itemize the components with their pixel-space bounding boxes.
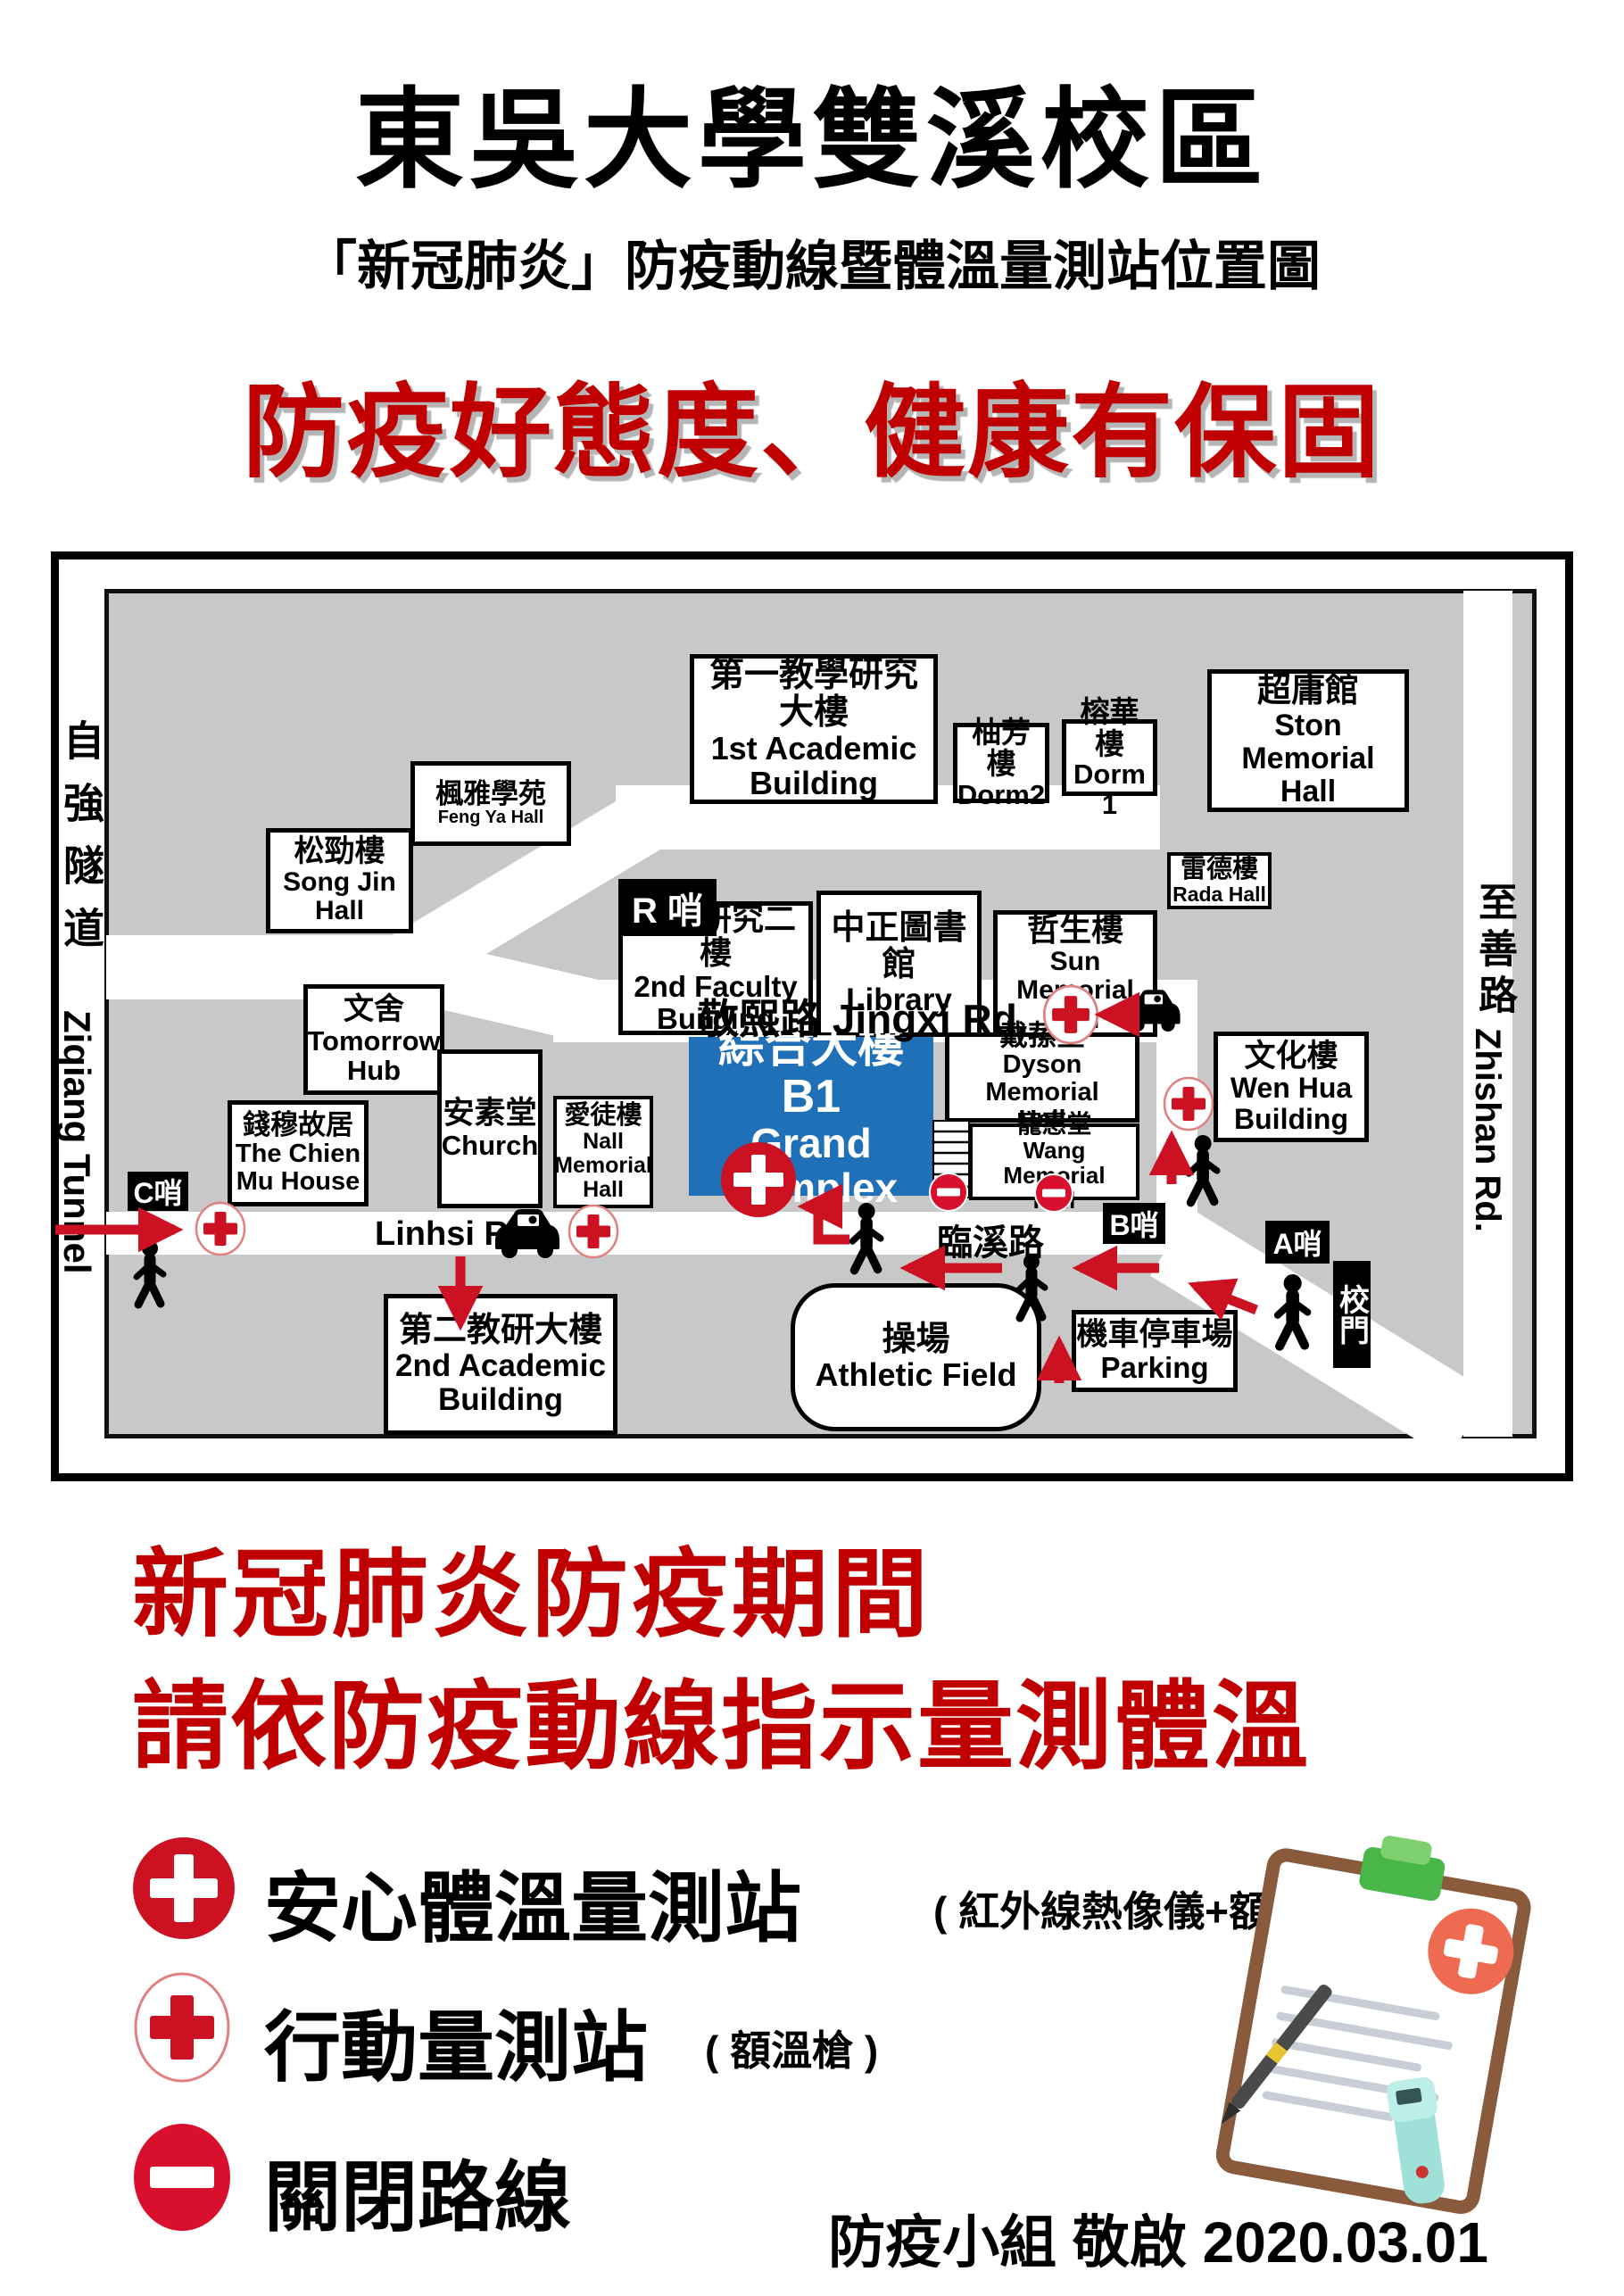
- building-label: 哲生樓: [1027, 913, 1123, 948]
- building-dorm2: 柚芳樓 Dorm2: [953, 723, 1049, 803]
- building-wang-memorial: 寵惠堂 Wang Memorial Hall: [969, 1123, 1139, 1200]
- thermometer-gun-icon: [1385, 2076, 1450, 2206]
- legend-safe-label: 安心體溫量測站: [264, 1845, 801, 1957]
- building-2nd-academic: 第二教研大樓 2nd Academic Building: [384, 1294, 617, 1435]
- notice-line-2: 請依防疫動線指示量測體溫: [132, 1649, 1310, 1788]
- label-zhishan-zh: 至善路: [1465, 882, 1522, 1021]
- building-1st-academic: 第一教學研究大樓 1st Academic Building: [690, 654, 938, 804]
- building-label: 中正圖書館: [821, 910, 977, 983]
- building-label: Athletic Field: [815, 1358, 1016, 1393]
- building-label: 錢穆故居: [243, 1110, 353, 1140]
- legend-mobile-label: 行動量測站: [264, 1985, 648, 2096]
- label-ziqiang-tunnel-zh: 自強隧道: [52, 719, 111, 969]
- slogan-text: 防疫好態度、健康有保固: [0, 350, 1624, 497]
- building-label: Wen Hua: [1230, 1073, 1352, 1104]
- building-label: Hall: [1033, 1188, 1076, 1213]
- building-athletic-field: 操場 Athletic Field: [791, 1283, 1041, 1431]
- poster-page: 東吳大學雙溪校區 「新冠肺炎」防疫動線暨體溫量測站位置圖 防疫好態度、健康有保固…: [0, 0, 1624, 2296]
- legend-closed-label: 關閉路線: [264, 2134, 571, 2246]
- building-label: 榕華樓: [1066, 696, 1153, 759]
- legend-mobile-note: ( 額溫槍 ): [705, 2018, 878, 2077]
- label-linhsi-road-en: Linhsi Rd.: [375, 1215, 539, 1254]
- legend-safe-station-icon: [133, 1837, 235, 1939]
- building-label: 安素堂: [443, 1097, 536, 1131]
- building-label: Hall: [1280, 775, 1336, 808]
- building-label: Building: [750, 767, 878, 801]
- building-label: 雷德樓: [1181, 856, 1258, 883]
- building-church: 安素堂 Church: [437, 1049, 543, 1208]
- building-label: Dyson Memorial: [949, 1051, 1135, 1107]
- building-label: Parking: [1100, 1352, 1208, 1384]
- building-label: Song Jin: [283, 868, 396, 897]
- building-label: Hall: [315, 897, 364, 925]
- building-label: Dorm 1: [1066, 759, 1153, 819]
- label-ziqiang-tunnel-en: Ziqiang Tunnel: [55, 1010, 98, 1274]
- building-label: 第一教學研究大樓: [694, 657, 933, 732]
- building-label: 第二教研大樓: [399, 1313, 602, 1349]
- building-label: 愛徒樓: [564, 1102, 642, 1130]
- pen-icon: [1215, 1983, 1334, 2129]
- clipboard-illustration: [1212, 1829, 1554, 2226]
- building-label: Wang Memorial: [973, 1138, 1136, 1188]
- building-label: Hub: [347, 1056, 401, 1085]
- legend-mobile-station-icon: [136, 1974, 228, 2081]
- checkpoint-b: B哨: [1103, 1203, 1165, 1244]
- building-label: Building: [438, 1383, 563, 1417]
- building-nall-memorial: 愛徒樓 Nall Memorial Hall: [553, 1096, 653, 1208]
- building-label: Nall: [583, 1130, 624, 1154]
- building-label: 柚芳樓: [957, 717, 1045, 780]
- building-label: 1st Academic: [711, 732, 917, 767]
- building-tomorrow-hub: 文舍 Tomorrow Hub: [303, 984, 444, 1095]
- checkpoint-r: R 哨: [618, 879, 717, 936]
- building-label: Building: [1234, 1104, 1348, 1135]
- building-label: Feng Ya Hall: [438, 808, 544, 828]
- building-feng-ya: 楓雅學苑 Feng Ya Hall: [410, 761, 571, 846]
- building-label: The Chien: [236, 1140, 360, 1168]
- building-dyson-memorial: 戴蓀堂 Dyson Memorial Hall: [945, 1032, 1139, 1123]
- building-dorm1: 榕華樓 Dorm 1: [1062, 719, 1157, 796]
- checkpoint-c: C哨: [128, 1172, 188, 1211]
- checkpoint-gate: 校門: [1333, 1261, 1371, 1368]
- building-ston-memorial: 超庸館 Ston Memorial Hall: [1207, 669, 1409, 812]
- building-label: 文舍: [344, 993, 404, 1026]
- building-chien-mu-house: 錢穆故居 The Chien Mu House: [228, 1100, 369, 1206]
- checkpoint-a: A哨: [1265, 1221, 1330, 1264]
- building-label: 松勁樓: [294, 835, 385, 868]
- building-label: Memorial: [554, 1154, 652, 1178]
- label-linhsi-road-zh: 臨溪路: [937, 1214, 1044, 1265]
- building-label: 超庸館: [1257, 673, 1359, 709]
- building-parking: 機車停車場 Parking: [1072, 1310, 1238, 1392]
- building-wen-hua: 文化樓 Wen Hua Building: [1214, 1032, 1369, 1142]
- page-title: 東吳大學雙溪校區: [0, 52, 1624, 210]
- building-label: Rada Hall: [1172, 883, 1266, 906]
- label-zhishan-en: Zhishan Rd.: [1467, 1028, 1507, 1232]
- label-jingxi-road: 敬熙路 Jingxi Rd.: [698, 987, 1029, 1046]
- building-label: Mu House: [236, 1168, 360, 1196]
- building-label: 2nd Academic: [395, 1349, 606, 1383]
- building-label: 寵惠堂: [1016, 1111, 1091, 1138]
- notice-line-1: 新冠肺炎防疫期間: [132, 1517, 932, 1656]
- building-label: 操場: [882, 1322, 949, 1358]
- building-label: Grand Complex: [689, 1122, 933, 1210]
- building-label: Ston Memorial: [1212, 709, 1404, 775]
- building-label: Tomorrow: [307, 1026, 440, 1056]
- building-label: 楓雅學苑: [435, 779, 546, 808]
- legend-closed-route-icon: [134, 2124, 230, 2231]
- building-label: Church: [442, 1131, 539, 1160]
- building-label: Hall: [583, 1178, 624, 1202]
- building-label: Dorm2: [957, 780, 1045, 809]
- page-subtitle: 「新冠肺炎」防疫動線暨體溫量測站位置圖: [0, 223, 1624, 301]
- building-rada: 雷德樓 Rada Hall: [1167, 852, 1272, 909]
- building-song-jin: 松勁樓 Song Jin Hall: [266, 828, 413, 933]
- building-grand-complex: 綜合大樓 B1 Grand Complex: [689, 1037, 933, 1196]
- building-label: 機車停車場: [1076, 1318, 1232, 1352]
- building-label: 文化樓: [1244, 1040, 1338, 1073]
